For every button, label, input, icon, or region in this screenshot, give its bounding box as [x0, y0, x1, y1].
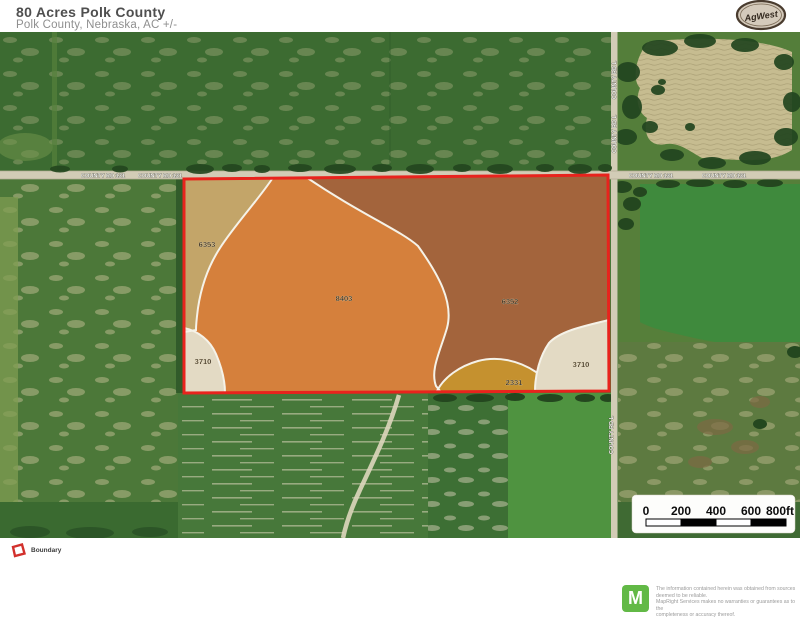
road-label-h2: COUNTY RD 131	[138, 174, 182, 180]
road-label-v2: COUNTY RD L	[612, 114, 618, 153]
scale-tick-600: 600	[741, 504, 761, 518]
road-label-v1: COUNTY RD L	[612, 60, 618, 99]
scale-tick-0: 0	[643, 504, 650, 518]
scale-bar: 0 200 400 600 800ft	[632, 495, 795, 533]
soil-label-6352: 6352	[502, 297, 519, 306]
road-label-h4: COUNTY RD 131	[702, 174, 746, 180]
company-logo: AgWest	[733, 0, 789, 32]
road-label-h1: COUNTY RD 131	[81, 174, 125, 180]
soil-label-3710-right: 3710	[573, 360, 590, 369]
tree-row-bottom-left	[10, 526, 168, 538]
mapright-logo: M	[622, 585, 649, 612]
field-right-band	[612, 179, 800, 538]
company-logo-badge: AgWest	[733, 0, 789, 32]
bright-green-field	[640, 184, 800, 346]
page: 80 Acres Polk County Polk County, Nebras…	[0, 0, 800, 618]
road-label-h3: COUNTY RD 131	[629, 174, 673, 180]
soil-label-2331: 2331	[506, 378, 523, 387]
disclaimer-line-3: MapRight Services makes no warranties or…	[656, 599, 798, 612]
disclaimer-line-2: deemed to be reliable.	[656, 593, 798, 600]
page-subtitle: Polk County, Nebraska, AC +/-	[16, 19, 177, 31]
scale-segments	[646, 519, 786, 526]
legend	[10, 543, 27, 559]
road-label-v3: COUNTY RD L	[609, 415, 615, 454]
field-bottom-band	[178, 393, 618, 538]
aerial-map: 6353 8403 6352 3710 2331 3710 COUNTY RD …	[0, 32, 800, 538]
soil-label-8403: 8403	[336, 294, 353, 303]
road-vertical	[611, 32, 618, 538]
disclaimer-line-4: completeness or accuracy thereof.	[656, 612, 798, 618]
field-top-band	[0, 32, 611, 172]
boundary-polygon-glyph	[13, 545, 25, 557]
field-left-band	[0, 179, 183, 538]
soil-label-3710-left: 3710	[195, 357, 212, 366]
page-title: 80 Acres Polk County	[16, 4, 165, 20]
disclaimer-line-1: The information contained herein was obt…	[656, 586, 798, 593]
scale-tick-400: 400	[706, 504, 726, 518]
scale-tick-200: 200	[671, 504, 691, 518]
hedge-row-west	[176, 179, 183, 393]
soil-overlay	[184, 175, 609, 393]
scale-tick-800ft: 800ft	[766, 504, 794, 518]
boundary-legend-label: Boundary	[31, 547, 61, 554]
soil-label-6353: 6353	[199, 240, 216, 249]
disclaimer-text: The information contained herein was obt…	[656, 586, 798, 618]
aerial-map-svg: 6353 8403 6352 3710 2331 3710 COUNTY RD …	[0, 32, 800, 538]
field-top-right	[611, 32, 800, 172]
boundary-legend-icon	[10, 543, 27, 558]
